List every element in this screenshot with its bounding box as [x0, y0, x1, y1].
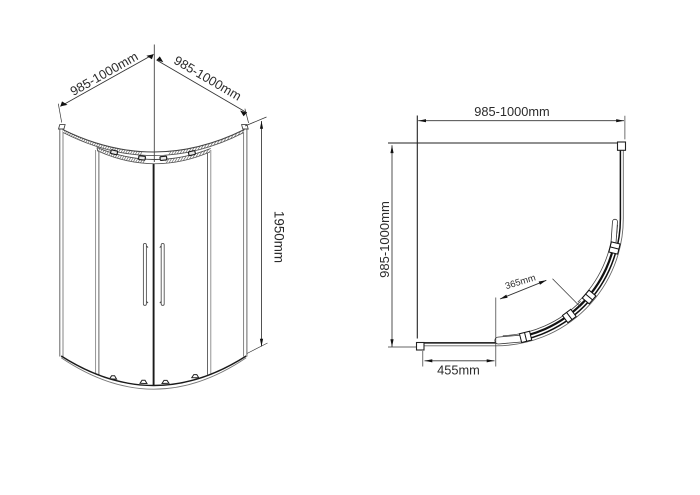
svg-text:455mm: 455mm — [437, 363, 480, 378]
svg-text:985-1000mm: 985-1000mm — [474, 104, 549, 119]
svg-text:1950mm: 1950mm — [272, 211, 287, 263]
svg-text:985-1000mm: 985-1000mm — [377, 201, 392, 278]
